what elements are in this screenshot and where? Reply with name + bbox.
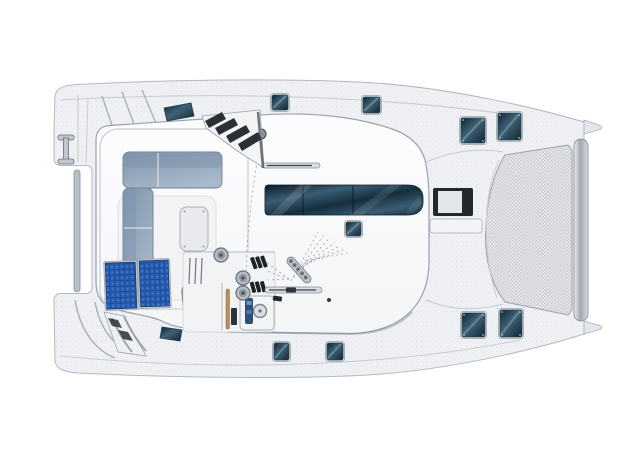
screw-dot: [499, 114, 501, 116]
screw-dot: [519, 334, 521, 336]
screw-dot: [482, 314, 484, 316]
helm-console: [240, 296, 274, 330]
screw-dot: [501, 311, 503, 313]
screw-dot: [518, 114, 520, 116]
winch-hub: [241, 291, 244, 294]
padeye: [327, 298, 331, 302]
bow-tip-top: [584, 120, 602, 134]
foredeck-hatch-top-right: [497, 112, 523, 142]
settee-backrest: [123, 152, 222, 168]
screw-dot: [519, 311, 521, 313]
screw-dot: [462, 140, 464, 142]
side-deck-hatch-aft-top: [271, 94, 290, 112]
side-deck-hatch-fwd-bottom: [326, 342, 345, 362]
stern-rail-bar: [74, 170, 80, 292]
side-deck-hatch-aft-bottom: [273, 342, 291, 362]
solar-panel-right: [139, 260, 170, 307]
winch-hub: [219, 253, 222, 256]
rope-bag-slot: [231, 308, 237, 325]
tiller-bar: [226, 289, 230, 329]
side-deck-hatch-fwd-top: [362, 96, 382, 115]
winch-hub: [241, 276, 244, 279]
screenshot-canvas: [0, 0, 640, 457]
traveller-car: [286, 288, 296, 293]
salon-window-band: [265, 185, 423, 215]
screw-dot: [518, 137, 520, 139]
bow-tip-bottom: [584, 321, 602, 334]
trampoline-net: [486, 145, 572, 315]
screw-dot: [462, 119, 464, 121]
screw-dot: [499, 137, 501, 139]
foredeck-hatch-bottom-left: [461, 312, 487, 339]
screw-dot: [463, 334, 465, 336]
cockpit-table: [180, 207, 208, 251]
screw-dot: [482, 119, 484, 121]
screw-dot: [501, 334, 503, 336]
coachroof-hatch: [345, 221, 363, 238]
screw-dot: [482, 140, 484, 142]
solar-panel-left: [105, 262, 137, 309]
screw-dot: [463, 314, 465, 316]
bow-crossbeam: [574, 139, 588, 321]
catamaran-deck-plan: [0, 0, 640, 457]
foredeck-hatch-bottom-right: [499, 309, 524, 339]
foredeck-hatch-top-left: [460, 117, 487, 145]
screw-dot: [482, 334, 484, 336]
